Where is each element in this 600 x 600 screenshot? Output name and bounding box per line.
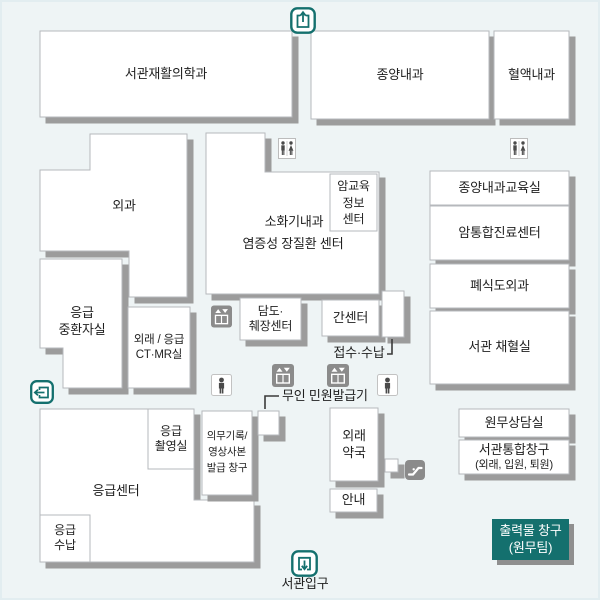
label-reception: 접수·수납: [324, 345, 394, 361]
person-icon: [211, 374, 232, 401]
restroom-icon: [278, 138, 296, 164]
escalator-icon: [405, 460, 425, 485]
elevator-icon: [327, 364, 349, 392]
small-booth-shape: [385, 459, 398, 472]
label-info: 안내: [330, 492, 377, 508]
label-hematology: 혈액내과: [494, 31, 569, 119]
label-er-center: 응급센터: [76, 483, 156, 499]
label-lung-eso: 폐식도외과: [430, 278, 569, 294]
kiosk-box-shape: [258, 411, 279, 435]
person-icon: [377, 374, 398, 401]
door-exit-left-icon: [30, 380, 54, 409]
label-er-pay: 응급 수납: [40, 520, 90, 556]
label-onc-edu-room: 종양내과교육실: [430, 180, 569, 196]
label-pharmacy: 외래 약국: [330, 427, 378, 463]
label-er-xray: 응급 촬영실: [148, 421, 194, 457]
door-exit-up-icon: [290, 7, 316, 39]
label-er-icu: 응급 중환자실: [40, 305, 124, 339]
label-oncology: 종양내과: [311, 31, 489, 119]
label-blood-room: 서관 채혈실: [430, 339, 569, 355]
label-integrated-desk: 서관통합창구: [459, 443, 569, 458]
restroom-icon: [510, 138, 528, 164]
kiosk-connector-line: [265, 396, 279, 409]
label-surgery: 외과: [62, 198, 186, 214]
label-print-desk: 출력물 창구 (원무팀): [492, 523, 569, 557]
label-biliary: 담도· 췌장센터: [240, 301, 301, 337]
label-cancer-edu: 암교육 정보 센터: [330, 178, 377, 228]
label-admin-office: 원무상담실: [459, 415, 569, 431]
elevator-icon: [211, 305, 232, 333]
reception-desk-shape: [382, 291, 404, 337]
label-rehab: 서관재활의학과: [40, 31, 292, 117]
label-liver: 간센터: [322, 309, 379, 327]
elevator-icon: [272, 364, 294, 392]
hospital-floor-map: 서관재활의학과 종양내과 혈액내과 외과 응급 중환자실 외래 / 응급 CT·…: [0, 0, 600, 600]
label-ibd-center: 염증성 장질환 센터: [208, 236, 378, 253]
label-records: 의무기록/ 영상사본 발급 창구: [200, 425, 254, 479]
label-cancer-integrated: 암통합진료센터: [430, 225, 569, 241]
door-entrance-down-icon: [291, 550, 318, 582]
label-integrated-desk-sub: (외래, 입원, 퇴원): [459, 458, 569, 472]
label-ct-mr: 외래 / 응급 CT·MR실: [126, 330, 192, 366]
